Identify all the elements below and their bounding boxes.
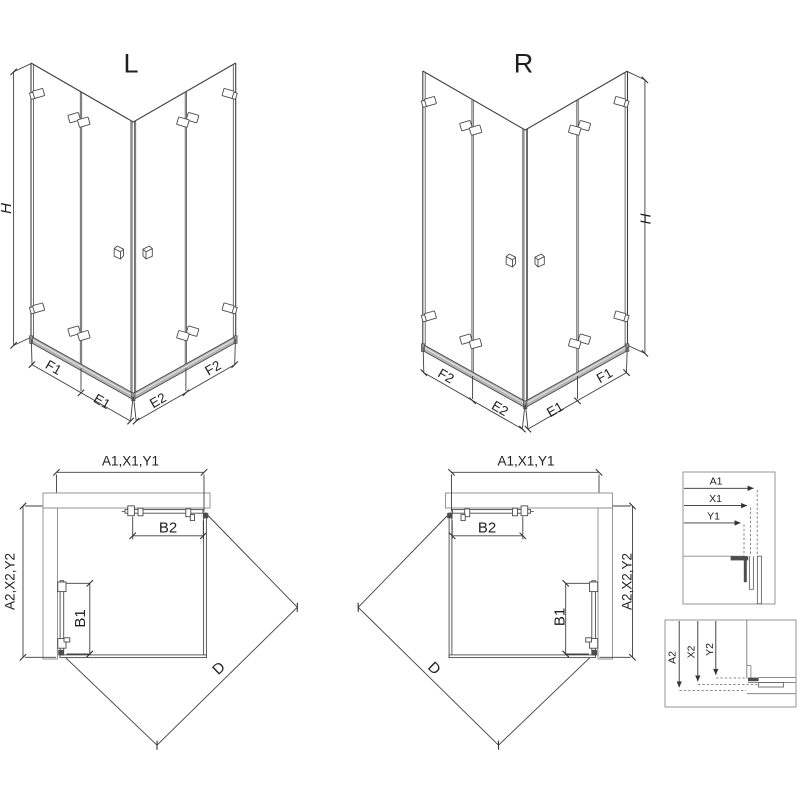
plan-left-diagonal-dim: D <box>209 659 229 679</box>
plan-right-top-door-dim: B2 <box>478 520 496 537</box>
plan-left-side-door-dim: B1 <box>72 609 89 627</box>
floor-profile-section <box>747 678 796 694</box>
detail-dim-a2: A2 <box>667 651 679 664</box>
detail-dim-a1: A1 <box>710 476 723 488</box>
detail-dim-y2: Y2 <box>704 643 716 656</box>
plan-left-width-dim: A1,X1,Y1 <box>102 454 159 469</box>
wall-side <box>43 508 58 659</box>
iso-left-height-label: H <box>0 203 15 214</box>
wall-profile-section <box>731 556 762 604</box>
detail-panel-vertical: A2 X2 Y2 <box>665 620 796 707</box>
wall-top <box>446 493 613 508</box>
wall-side <box>598 508 613 659</box>
iso-view-left: L H F1 E1 E2 F2 <box>0 49 238 425</box>
iso-right-dim-f1: F1 <box>594 365 615 386</box>
wall-top <box>43 493 210 508</box>
iso-left-dim-e2: E2 <box>147 390 169 411</box>
iso-right-dim-f2: F2 <box>435 366 456 387</box>
iso-right-dim-e1: E1 <box>544 399 566 420</box>
iso-right-title: R <box>514 49 534 79</box>
plan-right-side-door-dim: B1 <box>552 608 569 626</box>
iso-view-right: R H F2 E2 E1 F1 <box>421 49 655 433</box>
diagram-svg: L H F1 E1 E2 F2 R H F2 E2 E1 F1 A1,X1,Y1… <box>0 0 800 800</box>
iso-right-height-label: H <box>637 213 654 224</box>
plan-right-width-dim: A1,X1,Y1 <box>497 454 554 469</box>
iso-left-dim-f1: F1 <box>43 357 64 378</box>
iso-left-dim-f2: F2 <box>202 358 223 379</box>
plan-view-left: A1,X1,Y1 A2,X2,Y2 B2 B1 D <box>3 454 302 750</box>
plan-right-depth-dim: A2,X2,Y2 <box>620 553 635 610</box>
iso-left-title: L <box>123 49 138 79</box>
detail-dim-x1: X1 <box>709 493 722 505</box>
plan-left-top-door-dim: B2 <box>159 520 177 537</box>
detail-dim-x2: X2 <box>686 645 698 658</box>
shower-enclosure-technical-drawing: L H F1 E1 E2 F2 R H F2 E2 E1 F1 A1,X1,Y1… <box>0 0 800 800</box>
plan-view-right: A1,X1,Y1 A2,X2,Y2 B2 B1 D <box>354 454 636 750</box>
detail-dim-y1: Y1 <box>707 511 720 523</box>
plan-left-depth-dim: A2,X2,Y2 <box>3 553 18 610</box>
iso-right-dim-e2: E2 <box>489 398 511 419</box>
detail-panel-horizontal: A1 X1 Y1 <box>683 472 775 604</box>
